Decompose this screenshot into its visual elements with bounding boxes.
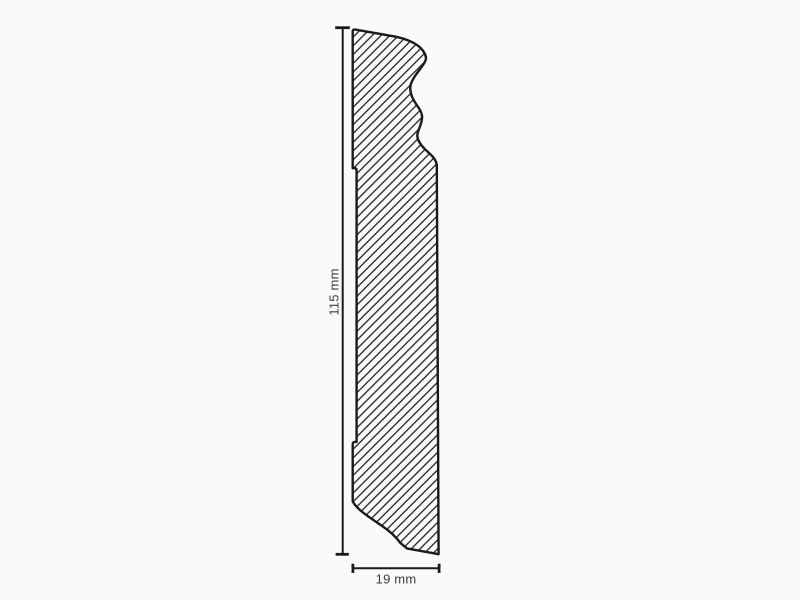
width-dimension-label: 19 mm bbox=[376, 573, 417, 586]
height-dimension-label: 115 mm bbox=[328, 268, 341, 315]
diagram-canvas: 115 mm 19 mm bbox=[0, 0, 800, 600]
profile-shape bbox=[353, 30, 439, 555]
skirting-profile-diagram bbox=[0, 0, 800, 600]
